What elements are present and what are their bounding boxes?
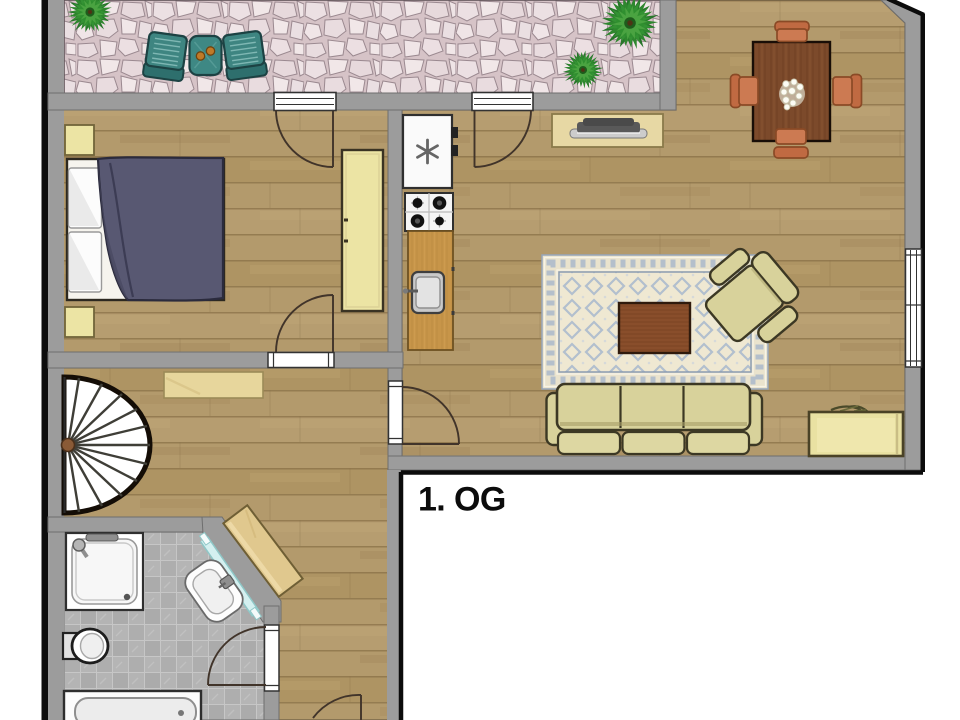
- svg-text:1. OG: 1. OG: [418, 481, 506, 519]
